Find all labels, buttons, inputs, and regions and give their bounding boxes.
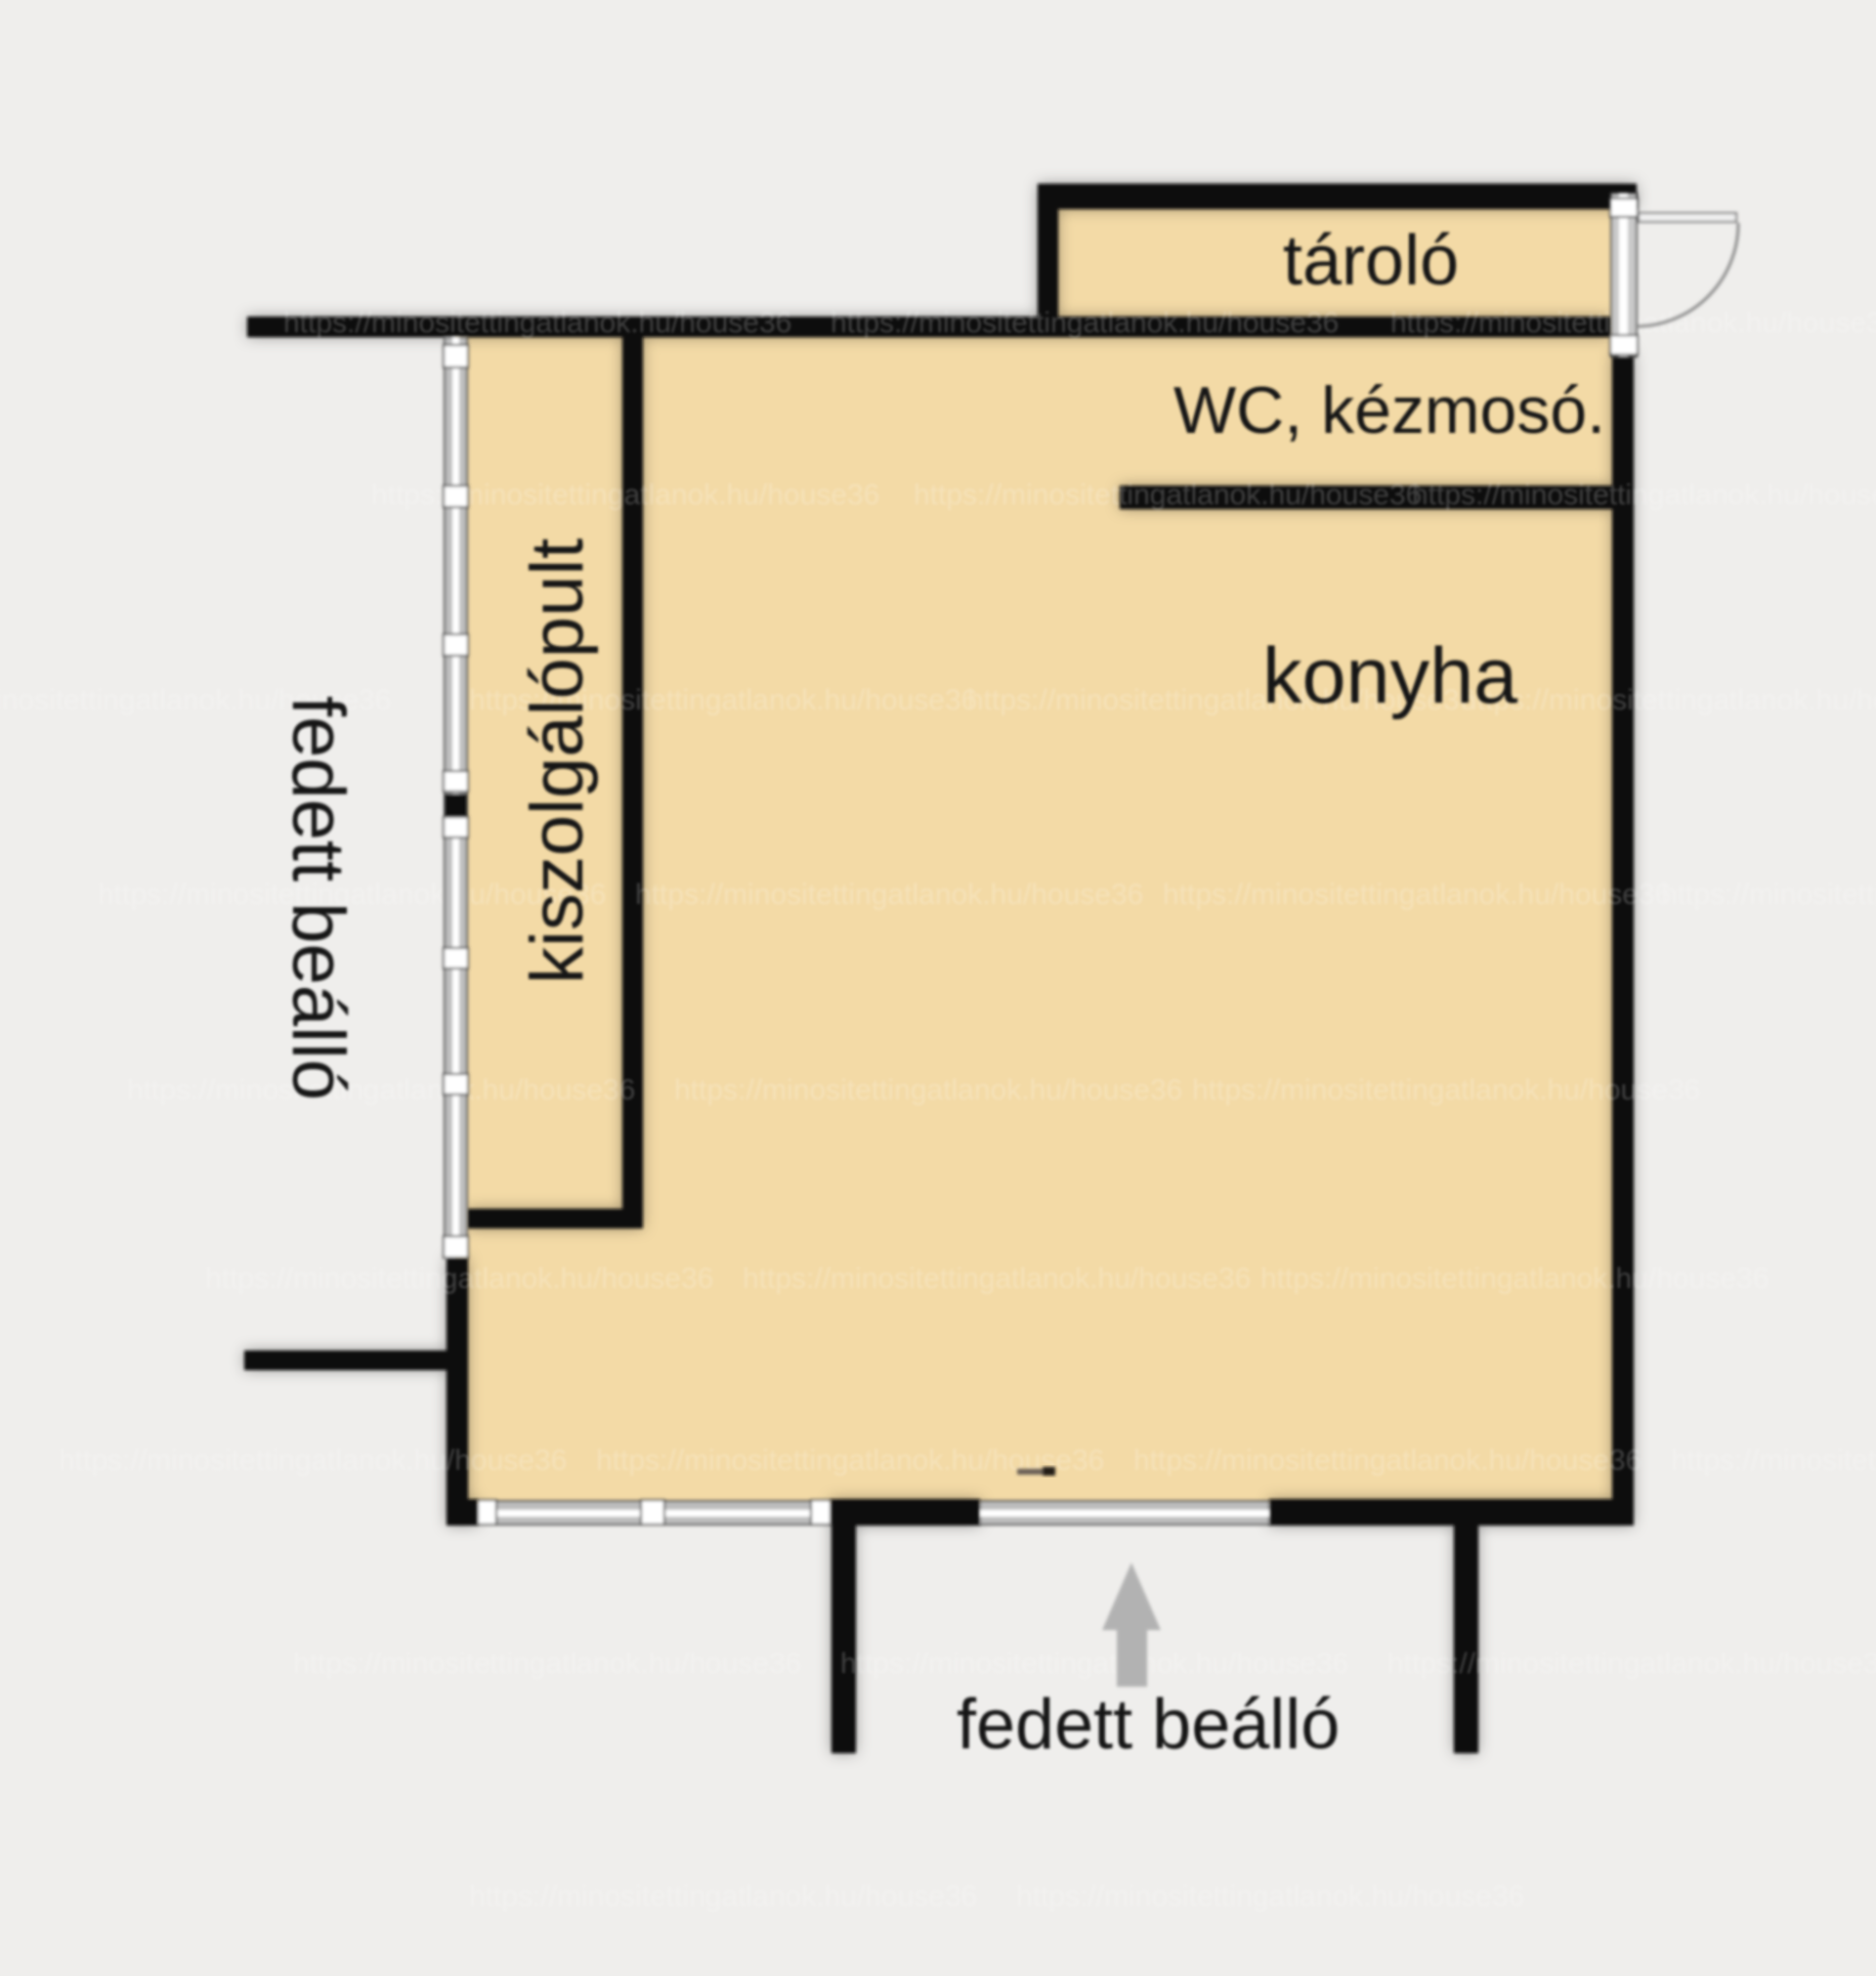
svg-text:https://minositettingatlanok.h: https://minositettingatlanok.hu/house36: [1192, 1074, 1700, 1106]
svg-text:https://minositettingatlanok.h: https://minositettingatlanok.hu/house36: [635, 879, 1143, 911]
svg-text:https://minositettingatlanok.h: https://minositettingatlanok.hu/house36: [283, 307, 791, 339]
svg-text:https://minositettingatlanok.h: https://minositettingatlanok.hu/house36: [59, 1444, 567, 1477]
svg-text:https://minositettingatlanok.h: https://minositettingatlanok.hu/house36: [1461, 684, 1876, 716]
svg-text:WC, kézmosó.: WC, kézmosó.: [1173, 373, 1605, 448]
svg-text:https://minositettingatlanok.h: https://minositettingatlanok.hu/house36: [840, 1648, 1348, 1680]
svg-text:https://minositettingatlanok.h: https://minositettingatlanok.hu/house36: [1163, 879, 1671, 911]
svg-text:https://minositettingatlanok.h: https://minositettingatlanok.hu/house36: [1661, 879, 1876, 911]
svg-text:fedett beálló: fedett beálló: [957, 1686, 1340, 1764]
svg-text:https://minositettingatlanok.h: https://minositettingatlanok.hu/house36: [1671, 1444, 1876, 1477]
svg-text:kiszolgálópult: kiszolgálópult: [516, 538, 599, 984]
svg-text:https://minositettingatlanok.h: https://minositettingatlanok.hu/house36: [1412, 479, 1876, 511]
svg-text:https://minositettingatlanok.h: https://minositettingatlanok.hu/house36: [914, 479, 1422, 511]
svg-text:https://minositettingatlanok.h: https://minositettingatlanok.hu/house36: [127, 1074, 635, 1106]
svg-text:https://minositettingatlanok.h: https://minositettingatlanok.hu/house36: [743, 1263, 1251, 1295]
svg-text:https://minositettingatlanok.h: https://minositettingatlanok.hu/house36: [831, 307, 1339, 339]
svg-text:https://minositettingatlanok.h: https://minositettingatlanok.hu/house36: [469, 1880, 977, 1912]
svg-text:https://minositettingatlanok.h: https://minositettingatlanok.hu/house36: [293, 1648, 801, 1680]
svg-text:konyha: konyha: [1262, 632, 1518, 720]
svg-text:https://minositettingatlanok.h: https://minositettingatlanok.hu/house36: [1260, 1263, 1769, 1295]
svg-text:https://minositettingatlanok.h: https://minositettingatlanok.hu/house36: [205, 1263, 713, 1295]
svg-text:fedett beálló: fedett beálló: [277, 696, 360, 1100]
svg-text:https://minositettingatlanok.h: https://minositettingatlanok.hu/house36: [674, 1074, 1182, 1106]
svg-text:https://minositettingatlanok.h: https://minositettingatlanok.hu/house36: [1133, 1444, 1641, 1477]
svg-text:https://minositettingatlanok.h: https://minositettingatlanok.hu/house36: [1387, 1648, 1876, 1680]
svg-text:tároló: tároló: [1283, 222, 1459, 300]
svg-text:https://minositettingatlanok.h: https://minositettingatlanok.hu/house36: [1016, 1880, 1524, 1912]
